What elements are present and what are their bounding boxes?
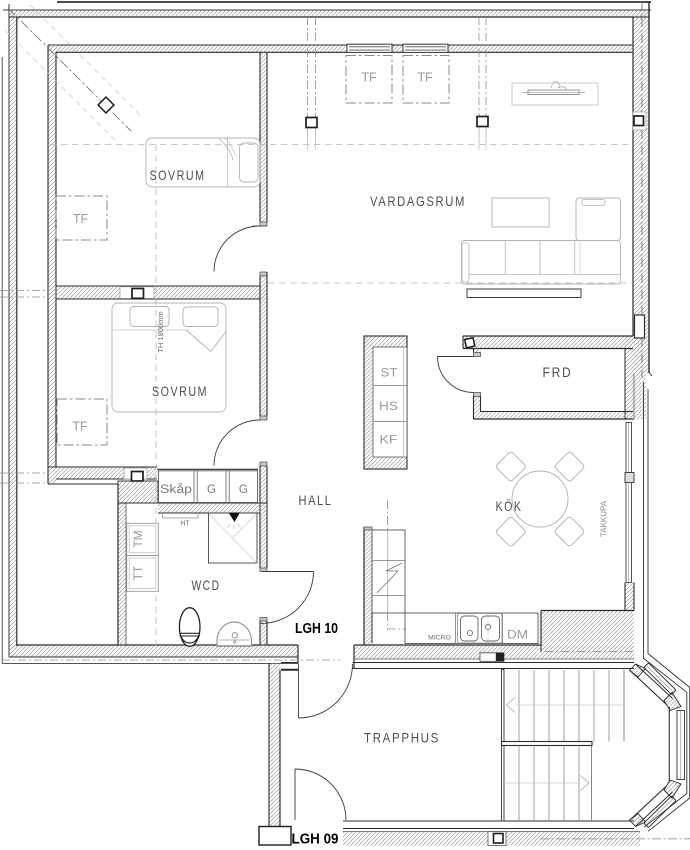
svg-text:TF: TF — [73, 212, 88, 226]
svg-text:KF: KF — [380, 435, 398, 447]
svg-text:MICRO: MICRO — [428, 635, 451, 642]
svg-text:HT: HT — [180, 521, 190, 528]
svg-text:DM: DM — [507, 630, 528, 642]
svg-text:HALL: HALL — [299, 492, 333, 508]
svg-text:SOVRUM: SOVRUM — [152, 383, 208, 399]
svg-text:TH 1800mm: TH 1800mm — [156, 311, 165, 352]
svg-text:FRD: FRD — [543, 364, 573, 380]
svg-text:G: G — [239, 484, 248, 496]
svg-text:TRAPPHUS: TRAPPHUS — [364, 730, 440, 746]
svg-text:SOVRUM: SOVRUM — [150, 167, 206, 183]
svg-text:LGH 10: LGH 10 — [295, 621, 338, 637]
svg-text:TM: TM — [131, 530, 145, 547]
svg-text:HS: HS — [379, 401, 398, 413]
svg-text:G: G — [207, 484, 216, 496]
svg-text:TF: TF — [362, 71, 377, 85]
svg-text:VARDAGSRUM: VARDAGSRUM — [370, 193, 466, 209]
svg-text:TAKKUPA: TAKKUPA — [600, 500, 609, 537]
svg-text:LGH 09: LGH 09 — [292, 832, 339, 848]
svg-text:TT: TT — [131, 565, 145, 580]
svg-text:KÖK: KÖK — [496, 497, 523, 514]
svg-text:Skåp: Skåp — [160, 484, 192, 496]
svg-text:TF: TF — [73, 420, 88, 434]
svg-text:WCD: WCD — [192, 577, 221, 593]
svg-text:ST: ST — [381, 368, 398, 380]
svg-text:TF: TF — [418, 71, 433, 85]
